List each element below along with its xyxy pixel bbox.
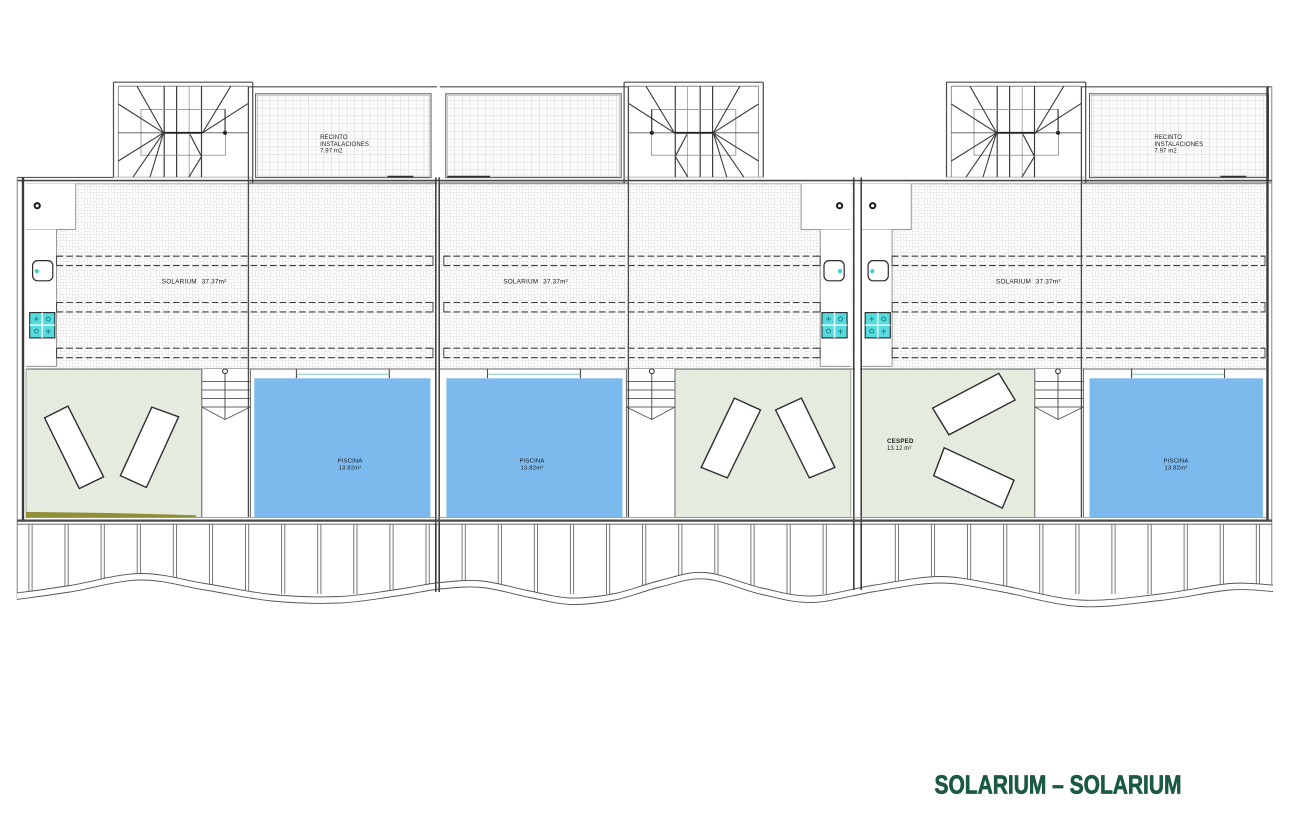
svg-text:37.37m²: 37.37m² xyxy=(202,279,227,286)
svg-text:INSTALACIONES: INSTALACIONES xyxy=(1154,142,1203,148)
svg-text:13.12 m²: 13.12 m² xyxy=(887,446,911,452)
svg-text:13.82m²: 13.82m² xyxy=(338,465,361,471)
svg-text:RECINTO: RECINTO xyxy=(320,135,348,141)
svg-text:CESPED: CESPED xyxy=(887,438,914,445)
svg-text:37.37m²: 37.37m² xyxy=(543,279,568,286)
svg-text:7.97 m2: 7.97 m2 xyxy=(320,149,343,155)
svg-text:SOLARIUM – SOLARIUM: SOLARIUM – SOLARIUM xyxy=(935,770,1182,800)
svg-text:SOLARIUM: SOLARIUM xyxy=(162,279,197,286)
svg-text:PISCINA: PISCINA xyxy=(1164,458,1189,464)
svg-text:7.97 m2: 7.97 m2 xyxy=(1154,149,1177,155)
svg-text:13.82m²: 13.82m² xyxy=(520,465,543,471)
svg-text:RECINTO: RECINTO xyxy=(1154,135,1182,141)
svg-text:SOLARIUM: SOLARIUM xyxy=(503,279,538,286)
svg-text:13.82m²: 13.82m² xyxy=(1164,465,1187,471)
svg-text:SOLARIUM: SOLARIUM xyxy=(996,279,1031,286)
svg-text:PISCINA: PISCINA xyxy=(520,458,545,464)
svg-text:PISCINA: PISCINA xyxy=(338,458,363,464)
svg-text:37.37m²: 37.37m² xyxy=(1036,279,1061,286)
svg-text:INSTALACIONES: INSTALACIONES xyxy=(320,142,369,148)
